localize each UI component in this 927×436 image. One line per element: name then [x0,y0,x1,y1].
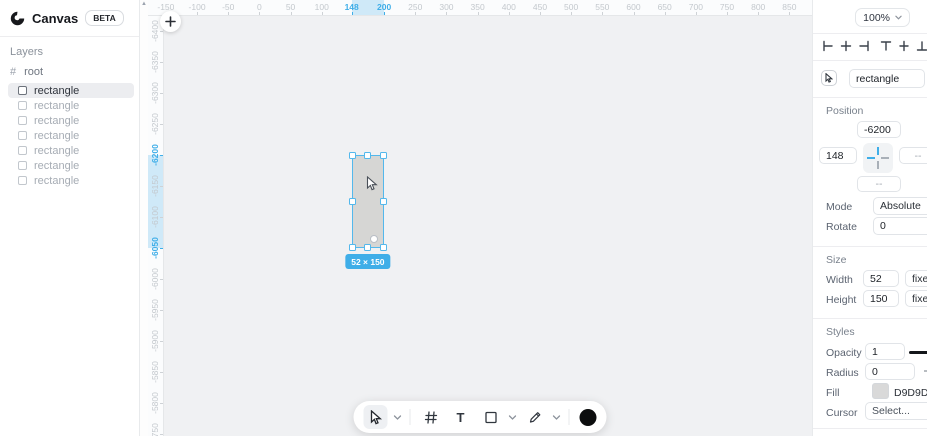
anchor-selector[interactable] [863,143,893,173]
root-label: root [24,66,43,78]
ruler-tick [540,12,541,15]
ruler-label: 100 [315,2,329,12]
resize-handle-top-right[interactable] [380,152,387,159]
scroll-up-icon[interactable]: ▲ [140,1,148,7]
layers-title: Layers [10,46,139,58]
layer-row[interactable]: rectangle [8,128,134,143]
ruler-tick [415,12,416,15]
app-title: Canvas [32,11,78,26]
layer-label: rectangle [34,160,79,172]
pen-tool-button[interactable] [523,405,547,429]
height-mode-select[interactable]: fixed [905,290,927,307]
ruler-label: 0 [257,2,262,12]
resize-handle-bottom-center[interactable] [364,244,371,251]
radius-handle[interactable] [370,235,378,243]
ruler-tick [160,31,163,32]
ruler-label: 350 [471,2,485,12]
fill-label: Fill [826,387,839,399]
resize-handle-middle-left[interactable] [349,198,356,205]
layer-checkbox-icon[interactable] [18,101,27,110]
ruler-label: -6350 [150,51,160,73]
ruler-tick [571,12,572,15]
layer-label: rectangle [34,145,79,157]
panel-divider [813,60,927,61]
rectangle-tool-chevron-icon[interactable] [509,415,517,420]
zoom-level: 100% [863,12,890,24]
ruler-tick [634,12,635,15]
ruler-tick [160,93,163,94]
layer-label: rectangle [34,130,79,142]
ruler-label: 800 [751,2,765,12]
width-label: Width [826,274,853,286]
hash-icon: # [10,66,16,78]
ruler-label: 600 [626,2,640,12]
horizontal-ruler: -150-100-5005010014820025030035040045050… [148,0,812,16]
layer-name-input[interactable] [849,69,925,88]
cursor-label: Cursor [826,407,858,419]
mouse-cursor-icon [366,176,378,191]
layer-row[interactable]: rectangle [8,158,134,173]
ruler-tick [446,12,447,15]
cursor-select[interactable]: Select... [865,402,927,420]
inspector-panel: 100% Position [812,0,927,436]
ruler-label: 500 [564,2,578,12]
zoom-level-button[interactable]: 100% [855,8,910,27]
anchor-top-tick[interactable] [877,147,879,155]
ruler-tick [259,12,260,15]
size-section-title: Size [826,254,846,266]
align-top-button[interactable] [879,39,892,52]
toolbar-divider [410,409,411,425]
canvas-logo-icon [10,11,25,26]
resize-handle-bottom-left[interactable] [349,244,356,251]
ruler-tick [758,12,759,15]
layer-root-row[interactable]: # root [0,63,139,81]
rotate-label: Rotate [826,221,857,233]
mode-select[interactable]: Absolute [873,197,927,215]
ruler-label: 300 [439,2,453,12]
position-right-input[interactable] [899,147,927,164]
ruler-label: -5950 [150,299,160,321]
ruler-label: -50 [222,2,234,12]
align-bottom-button[interactable] [915,39,927,52]
anchor-left-tick[interactable] [867,157,875,159]
ruler-label: 550 [595,2,609,12]
layer-checkbox-icon[interactable] [18,146,27,155]
radius-label: Radius [826,367,859,379]
select-tool-button[interactable] [364,405,388,429]
size-badge: 52 × 150 [345,254,390,269]
ruler-label: 148 [345,2,359,12]
layer-row[interactable]: rectangle [8,173,134,188]
ruler-label: -6300 [150,82,160,104]
opacity-label: Opacity [826,347,862,359]
ruler-tick [160,403,163,404]
ruler-tick [602,12,603,15]
ruler-tick [509,12,510,15]
width-input[interactable] [863,270,899,287]
add-button[interactable] [160,11,181,32]
layer-label: rectangle [34,85,79,97]
position-bottom-input[interactable] [857,176,901,192]
resize-handle-top-center[interactable] [364,152,371,159]
align-center-horizontal-button[interactable] [839,39,852,52]
ruler-label: 50 [286,2,295,12]
radius-input[interactable] [865,363,915,380]
resize-handle-bottom-right[interactable] [380,244,387,251]
vertical-ruler: -6400-6350-6300-6250-6200-6150-6100-6050… [148,0,164,436]
anchor-right-tick[interactable] [881,157,889,159]
grid-tool-button[interactable] [419,405,443,429]
ruler-tick [352,12,353,15]
selected-rectangle[interactable] [352,155,384,248]
canvas-area[interactable]: -6400-6350-6300-6250-6200-6150-6100-6050… [148,0,812,436]
anchor-bottom-tick[interactable] [877,161,879,169]
ruler-label: -5900 [150,330,160,352]
layer-row[interactable]: rectangle [8,143,134,158]
ruler-tick [696,12,697,15]
ruler-label: -5850 [150,361,160,383]
ruler-label: -6250 [150,113,160,135]
ruler-label: 450 [533,2,547,12]
ruler-tick [789,12,790,15]
ruler-tick [478,12,479,15]
layer-label: rectangle [34,175,79,187]
ruler-label: -100 [189,2,206,12]
cursor-icon [825,73,833,83]
ruler-label: 750 [720,2,734,12]
height-input[interactable] [863,290,899,307]
ruler-label: -6050 [150,237,160,259]
ruler-tick [160,341,163,342]
ruler-tick [197,12,198,15]
ruler-tick [727,12,728,15]
ruler-tick [665,12,666,15]
layer-checkbox-icon[interactable] [18,131,27,140]
alignment-toolbar [821,39,927,52]
mode-label: Mode [826,201,852,213]
layer-row[interactable]: rectangle [8,83,134,98]
rotate-input[interactable] [873,217,927,235]
panel-divider [813,318,927,319]
ruler-label: -6400 [150,20,160,42]
ruler-label: -6100 [150,206,160,228]
ruler-tick [160,217,163,218]
ruler-label: 650 [658,2,672,12]
brand-row: Canvas BETA [0,0,139,37]
ruler-label: 250 [408,2,422,12]
pen-tool-chevron-icon[interactable] [553,415,561,420]
resize-handle-middle-right[interactable] [380,198,387,205]
app-window: Canvas BETA Layers # root rectanglerecta… [0,0,927,436]
panel-divider [813,428,927,429]
ruler-tick [160,279,163,280]
align-right-button[interactable] [857,39,870,52]
ruler-label: -6200 [150,144,160,166]
ruler-tick [160,155,163,156]
layers-sidebar: Canvas BETA Layers # root rectanglerecta… [0,0,140,436]
styles-section-title: Styles [826,326,855,338]
height-label: Height [826,294,856,306]
ruler-tick [160,248,163,249]
ruler-tick [291,12,292,15]
color-swatch-button[interactable] [580,409,597,426]
panel-divider [813,33,927,34]
layer-checkbox-icon[interactable] [18,176,27,185]
position-y-input[interactable] [857,121,901,138]
ruler-tick [384,12,385,15]
ruler-label: -5750 [150,423,160,436]
position-section-title: Position [826,105,863,117]
layer-label: rectangle [34,100,79,112]
radius-link-icon[interactable] [923,366,927,376]
width-mode-select[interactable]: fixed [905,270,927,287]
ruler-tick [160,372,163,373]
ruler-tick [160,186,163,187]
ruler-tick [160,310,163,311]
layer-row[interactable]: rectangle [8,113,134,128]
select-tool-chevron-icon[interactable] [394,415,402,420]
ruler-label: 700 [689,2,703,12]
ruler-label: -5800 [150,392,160,414]
layer-checkbox-icon[interactable] [18,161,27,170]
fill-value[interactable]: D9D9D9 [894,387,927,399]
ruler-tick [160,124,163,125]
position-x-input[interactable] [819,147,857,164]
chevron-down-icon [895,15,902,20]
layer-checkbox-icon[interactable] [18,86,27,95]
ruler-tick [160,434,163,435]
tools-toolbar: T [354,401,607,433]
panel-divider [813,246,927,247]
rectangle-tool-button[interactable] [479,405,503,429]
opacity-slider[interactable] [909,351,927,354]
sidebar-scrollbar[interactable]: ▲ [140,0,148,436]
ruler-tick [228,12,229,15]
ruler-label: 400 [502,2,516,12]
toolbar-divider [569,409,570,425]
layer-row[interactable]: rectangle [8,98,134,113]
opacity-input[interactable] [865,343,905,360]
text-tool-button[interactable]: T [449,405,473,429]
selectable-toggle[interactable] [821,70,837,86]
align-left-button[interactable] [821,39,834,52]
panel-divider [813,97,927,98]
layers-list: rectanglerectanglerectanglerectanglerect… [0,83,139,188]
fill-color-swatch[interactable] [872,383,889,399]
ruler-label: 200 [377,2,391,12]
ruler-label: 850 [782,2,796,12]
beta-badge: BETA [85,10,124,26]
ruler-label: -6000 [150,268,160,290]
ruler-label: -6150 [150,175,160,197]
resize-handle-top-left[interactable] [349,152,356,159]
ruler-tick [160,62,163,63]
layer-checkbox-icon[interactable] [18,116,27,125]
vertical-ruler-selection-band [148,155,163,248]
ruler-tick [322,12,323,15]
align-center-vertical-button[interactable] [897,39,910,52]
layer-label: rectangle [34,115,79,127]
